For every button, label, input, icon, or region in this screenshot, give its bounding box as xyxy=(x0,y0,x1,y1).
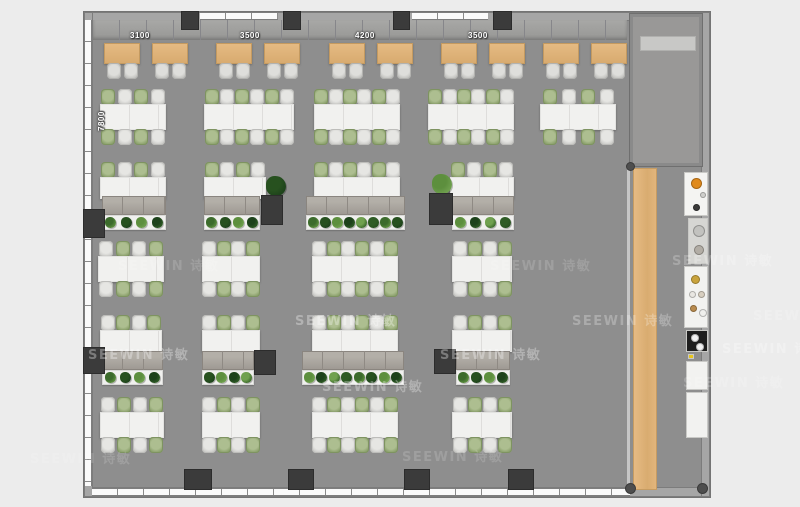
task-chair xyxy=(231,281,245,297)
watermark: SEEWIN 诗敏 xyxy=(118,255,219,274)
dining-chair xyxy=(219,63,233,79)
task-chair xyxy=(118,89,132,105)
dimension-label: 3100 xyxy=(130,31,150,40)
watermark: SEEWIN 诗敏 xyxy=(753,305,800,324)
task-chair xyxy=(280,89,294,105)
task-chair xyxy=(443,89,457,105)
task-chair xyxy=(220,162,234,178)
dining-table xyxy=(329,43,365,64)
task-chair xyxy=(341,281,355,297)
plant xyxy=(455,217,466,228)
task-chair xyxy=(500,89,514,105)
plant xyxy=(206,217,217,228)
floor-plant xyxy=(432,174,452,194)
task-chair xyxy=(217,315,231,331)
task-chair xyxy=(202,437,216,453)
plant xyxy=(121,217,132,228)
column-pillar xyxy=(509,470,533,489)
dimension-label: 3500 xyxy=(240,31,260,40)
watermark: SEEWIN 诗敏 xyxy=(30,448,131,467)
task-chair xyxy=(486,89,500,105)
planter-box xyxy=(102,370,163,385)
column-pillar xyxy=(262,196,282,224)
workstation-desk xyxy=(202,412,260,438)
plant xyxy=(308,217,319,228)
task-chair xyxy=(581,89,595,105)
plant xyxy=(233,217,244,228)
watermark: SEEWIN 诗敏 xyxy=(440,344,541,363)
task-chair xyxy=(117,397,131,413)
dimension-label: 3500 xyxy=(468,31,488,40)
plant xyxy=(266,176,286,196)
plant xyxy=(470,217,481,228)
appliance-dot xyxy=(693,204,700,211)
task-chair xyxy=(384,281,398,297)
task-chair xyxy=(357,89,371,105)
column-pillar xyxy=(494,12,511,29)
task-chair xyxy=(386,89,400,105)
task-chair xyxy=(457,129,471,145)
task-chair xyxy=(116,315,130,331)
task-chair xyxy=(202,315,216,331)
plant xyxy=(356,217,367,228)
plant xyxy=(105,217,116,228)
dining-chair xyxy=(380,63,394,79)
dining-table xyxy=(152,43,188,64)
appliance-dot xyxy=(691,334,699,342)
workstation-desk xyxy=(100,104,166,130)
kitchen-counter xyxy=(684,266,708,328)
workstation-desk xyxy=(100,412,164,438)
dining-table xyxy=(489,43,525,64)
appliance-dot xyxy=(699,309,707,317)
plant xyxy=(247,217,258,228)
task-chair xyxy=(151,129,165,145)
task-chair xyxy=(205,129,219,145)
task-chair xyxy=(312,437,326,453)
task-chair xyxy=(498,397,512,413)
task-chair xyxy=(265,129,279,145)
dining-table xyxy=(591,43,627,64)
dining-chair xyxy=(332,63,346,79)
task-chair xyxy=(370,241,384,257)
task-chair xyxy=(468,397,482,413)
dining-chair xyxy=(397,63,411,79)
task-chair xyxy=(355,437,369,453)
column-pillar xyxy=(84,210,104,237)
task-chair xyxy=(384,397,398,413)
task-chair xyxy=(372,129,386,145)
dining-chair xyxy=(611,63,625,79)
kitchen-counter xyxy=(684,172,708,216)
task-chair xyxy=(355,397,369,413)
appliance-dot xyxy=(693,225,705,237)
task-chair xyxy=(543,89,557,105)
task-chair xyxy=(134,129,148,145)
dining-chair xyxy=(492,63,506,79)
task-chair xyxy=(453,241,467,257)
appliance-dot xyxy=(690,305,697,312)
task-chair xyxy=(220,89,234,105)
column-pillar xyxy=(430,194,452,224)
task-chair xyxy=(341,397,355,413)
task-chair xyxy=(443,129,457,145)
task-chair xyxy=(600,129,614,145)
plant xyxy=(204,372,215,383)
task-chair xyxy=(250,89,264,105)
dining-chair xyxy=(284,63,298,79)
storage-locker xyxy=(302,351,404,370)
plant xyxy=(471,372,482,383)
dining-chair xyxy=(461,63,475,79)
workstation-desk xyxy=(312,330,398,352)
plant xyxy=(392,217,403,228)
task-chair xyxy=(101,315,115,331)
task-chair xyxy=(314,89,328,105)
watermark: SEEWIN 诗敏 xyxy=(490,255,591,274)
task-chair xyxy=(370,281,384,297)
task-chair xyxy=(483,397,497,413)
task-chair xyxy=(99,281,113,297)
dining-chair xyxy=(509,63,523,79)
task-chair xyxy=(483,281,497,297)
task-chair xyxy=(341,241,355,257)
plant xyxy=(241,372,252,383)
plant xyxy=(344,217,355,228)
task-chair xyxy=(562,129,576,145)
workstation-desk xyxy=(452,412,512,438)
wood-floor-strip xyxy=(633,168,657,490)
plant xyxy=(229,372,240,383)
task-chair xyxy=(312,397,326,413)
task-chair xyxy=(217,281,231,297)
task-chair xyxy=(250,129,264,145)
left-window-band xyxy=(84,20,92,486)
workstation-desk xyxy=(312,256,398,282)
meeting-room-cabinet xyxy=(640,36,696,51)
planter-box xyxy=(102,215,166,230)
plant xyxy=(332,217,343,228)
dining-chair xyxy=(444,63,458,79)
task-chair xyxy=(246,281,260,297)
task-chair xyxy=(133,437,147,453)
plant xyxy=(320,217,331,228)
planter-box xyxy=(306,215,405,230)
dining-table xyxy=(104,43,140,64)
plant xyxy=(432,174,452,194)
task-chair xyxy=(384,241,398,257)
task-chair xyxy=(265,89,279,105)
task-chair xyxy=(343,89,357,105)
task-chair xyxy=(101,89,115,105)
dining-table xyxy=(264,43,300,64)
plant xyxy=(497,372,508,383)
task-chair xyxy=(372,89,386,105)
corner-node xyxy=(627,163,634,170)
plant xyxy=(458,372,469,383)
task-chair xyxy=(468,315,482,331)
task-chair xyxy=(312,281,326,297)
task-chair xyxy=(202,397,216,413)
kitchen-counter xyxy=(686,330,708,352)
task-chair xyxy=(132,315,146,331)
plant xyxy=(134,372,145,383)
task-chair xyxy=(468,281,482,297)
watermark: SEEWIN 诗敏 xyxy=(672,250,773,269)
task-chair xyxy=(500,129,514,145)
task-chair xyxy=(133,397,147,413)
task-chair xyxy=(453,315,467,331)
task-chair xyxy=(453,397,467,413)
task-chair xyxy=(327,281,341,297)
workstation-desk xyxy=(204,104,294,130)
appliance-dot xyxy=(691,178,702,189)
task-chair xyxy=(231,397,245,413)
task-chair xyxy=(453,281,467,297)
plant xyxy=(120,372,131,383)
task-chair xyxy=(483,162,497,178)
task-chair xyxy=(312,241,326,257)
top-window-band xyxy=(412,12,488,20)
task-chair xyxy=(581,129,595,145)
task-chair xyxy=(384,437,398,453)
task-chair xyxy=(101,397,115,413)
workstation-desk xyxy=(202,330,260,352)
column-pillar xyxy=(394,12,409,29)
task-chair xyxy=(562,89,576,105)
storage-locker xyxy=(202,351,254,370)
column-pillar xyxy=(255,351,275,374)
storage-locker xyxy=(306,196,405,215)
task-chair xyxy=(246,241,260,257)
task-chair xyxy=(329,129,343,145)
task-chair xyxy=(355,241,369,257)
dimension-label: 4200 xyxy=(355,31,375,40)
dining-table xyxy=(377,43,413,64)
task-chair xyxy=(231,315,245,331)
workstation-desk xyxy=(314,104,400,130)
task-chair xyxy=(251,162,265,178)
task-chair xyxy=(386,129,400,145)
task-chair xyxy=(486,129,500,145)
task-chair xyxy=(205,89,219,105)
appliance-dot xyxy=(698,291,705,298)
top-window-band xyxy=(200,12,278,20)
task-chair xyxy=(372,162,386,178)
dining-table xyxy=(543,43,579,64)
workstation-desk xyxy=(540,104,616,130)
plant xyxy=(485,217,496,228)
planter-box xyxy=(202,370,254,385)
watermark: SEEWIN 诗敏 xyxy=(683,372,784,391)
column-pillar xyxy=(284,12,300,29)
storage-locker xyxy=(452,196,514,215)
watermark: SEEWIN 诗敏 xyxy=(402,446,503,465)
watermark: SEEWIN 诗敏 xyxy=(88,344,189,363)
task-chair xyxy=(428,129,442,145)
task-chair xyxy=(151,162,165,178)
workstation-desk xyxy=(428,104,514,130)
dimension-label: 7800 xyxy=(97,111,106,131)
column-pillar xyxy=(185,470,211,489)
task-chair xyxy=(231,241,245,257)
task-chair xyxy=(471,89,485,105)
plant xyxy=(152,217,163,228)
task-chair xyxy=(543,129,557,145)
task-chair xyxy=(327,241,341,257)
task-chair xyxy=(118,162,132,178)
dining-chair xyxy=(594,63,608,79)
task-chair xyxy=(329,162,343,178)
task-chair xyxy=(343,129,357,145)
floor-plan-canvas: SEEWIN 诗敏SEEWIN 诗敏SEEWIN 诗敏SEEWIN 诗敏SEEW… xyxy=(0,0,800,507)
task-chair xyxy=(205,162,219,178)
task-chair xyxy=(314,162,328,178)
plant xyxy=(484,372,495,383)
dining-chair xyxy=(349,63,363,79)
task-chair xyxy=(235,89,249,105)
watermark: SEEWIN 诗敏 xyxy=(722,338,800,357)
task-chair xyxy=(280,129,294,145)
plant xyxy=(500,217,511,228)
task-chair xyxy=(231,437,245,453)
kitchen-counter xyxy=(686,392,708,438)
storage-locker xyxy=(204,196,260,215)
task-chair xyxy=(327,437,341,453)
task-chair xyxy=(355,281,369,297)
dining-chair xyxy=(155,63,169,79)
appliance-dot xyxy=(689,291,696,298)
plant xyxy=(220,217,231,228)
planter-box xyxy=(452,215,514,230)
task-chair xyxy=(483,315,497,331)
task-chair xyxy=(99,241,113,257)
dining-chair xyxy=(236,63,250,79)
task-chair xyxy=(147,315,161,331)
column-pillar xyxy=(289,470,313,489)
dining-chair xyxy=(124,63,138,79)
task-chair xyxy=(357,162,371,178)
task-chair xyxy=(327,397,341,413)
task-chair xyxy=(217,397,231,413)
office-floor-plan: SEEWIN 诗敏SEEWIN 诗敏SEEWIN 诗敏SEEWIN 诗敏SEEW… xyxy=(0,0,800,507)
watermark: SEEWIN 诗敏 xyxy=(572,310,673,329)
task-chair xyxy=(499,162,513,178)
task-chair xyxy=(428,89,442,105)
task-chair xyxy=(217,437,231,453)
corner-node xyxy=(626,484,635,493)
task-chair xyxy=(246,397,260,413)
appliance-dot xyxy=(691,275,700,284)
dining-table xyxy=(441,43,477,64)
task-chair xyxy=(314,129,328,145)
task-chair xyxy=(386,162,400,178)
task-chair xyxy=(116,281,130,297)
corner-node xyxy=(698,484,707,493)
task-chair xyxy=(246,437,260,453)
task-chair xyxy=(343,162,357,178)
watermark: SEEWIN 诗敏 xyxy=(295,310,396,329)
task-chair xyxy=(151,89,165,105)
floor-plant xyxy=(266,176,286,196)
task-chair xyxy=(101,162,115,178)
task-chair xyxy=(149,437,163,453)
task-chair xyxy=(370,397,384,413)
dining-chair xyxy=(172,63,186,79)
planter-box xyxy=(204,215,260,230)
watermark: SEEWIN 诗敏 xyxy=(322,376,423,395)
column-pillar xyxy=(405,470,429,489)
dining-chair xyxy=(563,63,577,79)
column-pillar xyxy=(182,12,198,29)
planter-box xyxy=(456,370,510,385)
task-chair xyxy=(220,129,234,145)
task-chair xyxy=(149,281,163,297)
workstation-desk xyxy=(312,412,398,438)
storage-locker xyxy=(102,196,166,215)
plant xyxy=(105,372,116,383)
task-chair xyxy=(468,241,482,257)
task-chair xyxy=(370,437,384,453)
task-chair xyxy=(357,129,371,145)
plant xyxy=(216,372,227,383)
plant xyxy=(368,217,379,228)
task-chair xyxy=(498,315,512,331)
task-chair xyxy=(246,315,260,331)
plant xyxy=(304,372,315,383)
task-chair xyxy=(451,162,465,178)
task-chair xyxy=(118,129,132,145)
dining-chair xyxy=(267,63,281,79)
task-chair xyxy=(498,281,512,297)
plant xyxy=(149,372,160,383)
task-chair xyxy=(149,397,163,413)
task-chair xyxy=(457,89,471,105)
kitchen-counter xyxy=(688,354,694,359)
appliance-dot xyxy=(700,192,706,198)
task-chair xyxy=(202,281,216,297)
task-chair xyxy=(236,162,250,178)
dining-chair xyxy=(107,63,121,79)
task-chair xyxy=(329,89,343,105)
task-chair xyxy=(341,437,355,453)
bottom-window-band xyxy=(92,488,630,496)
appliance-dot xyxy=(696,343,704,351)
task-chair xyxy=(467,162,481,178)
dining-table xyxy=(216,43,252,64)
task-chair xyxy=(600,89,614,105)
plant xyxy=(380,217,391,228)
dining-chair xyxy=(546,63,560,79)
task-chair xyxy=(471,129,485,145)
plant xyxy=(136,217,147,228)
task-chair xyxy=(101,129,115,145)
task-chair xyxy=(134,89,148,105)
task-chair xyxy=(134,162,148,178)
task-chair xyxy=(235,129,249,145)
task-chair xyxy=(132,281,146,297)
